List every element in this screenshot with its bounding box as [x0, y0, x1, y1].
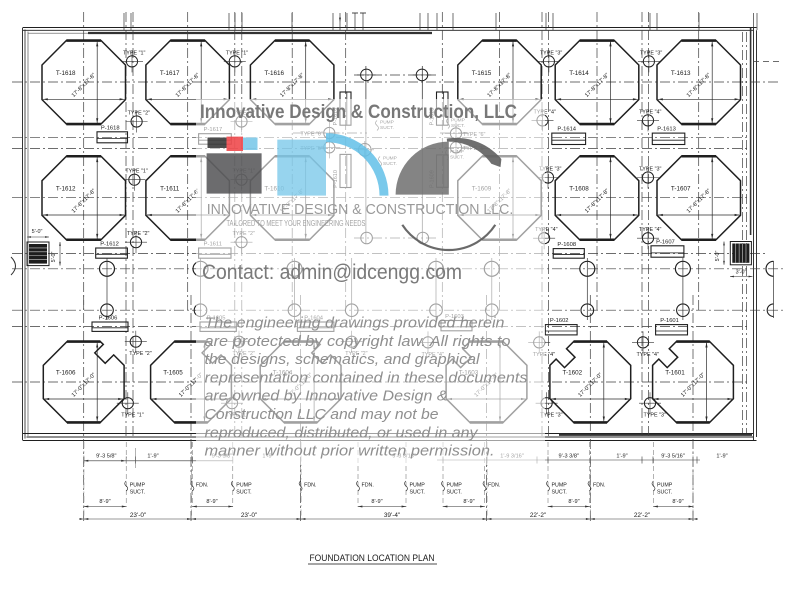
svg-text:TYPE "3": TYPE "3"	[640, 50, 662, 56]
svg-text:P-1601: P-1601	[660, 318, 679, 324]
svg-text:P-1612: P-1612	[100, 242, 119, 248]
svg-text:9'-3 5/16": 9'-3 5/16"	[661, 454, 685, 460]
svg-text:23'-0": 23'-0"	[241, 512, 257, 519]
svg-text:T-1611: T-1611	[160, 186, 180, 193]
svg-text:T-1616: T-1616	[264, 70, 284, 77]
svg-text:T-1602: T-1602	[562, 370, 582, 377]
svg-text:FOUNDATION LOCATION PLAN: FOUNDATION LOCATION PLAN	[310, 553, 435, 564]
svg-text:5'-0": 5'-0"	[32, 229, 43, 235]
svg-text:22'-2": 22'-2"	[634, 512, 650, 519]
svg-text:8'-9": 8'-9"	[206, 499, 217, 505]
svg-text:PUMP: PUMP	[657, 483, 673, 489]
svg-text:T-1618: T-1618	[56, 70, 76, 77]
svg-text:TYPE "4": TYPE "4"	[637, 352, 659, 358]
svg-text:P-1608: P-1608	[557, 242, 576, 248]
svg-text:Construction LLC and may not b: Construction LLC and may not be	[205, 406, 439, 423]
svg-text:8'-9": 8'-9"	[99, 499, 110, 505]
svg-text:are owned by Innovative Design: are owned by Innovative Design &	[205, 388, 448, 405]
svg-text:TYPE "2": TYPE "2"	[129, 351, 151, 357]
svg-text:T-1608: T-1608	[569, 186, 589, 193]
svg-text:SUCT.: SUCT.	[130, 490, 145, 496]
svg-text:The engineering drawings provi: The engineering drawings provided herein	[205, 315, 505, 332]
svg-text:TYPE "2": TYPE "2"	[127, 231, 149, 237]
svg-text:reproduced, distributed, or us: reproduced, distributed, or used in any	[205, 424, 480, 441]
svg-text:5'-0": 5'-0"	[715, 251, 721, 262]
svg-text:Innovative Design & Constructi: Innovative Design & Construction, LLC	[200, 101, 517, 123]
svg-text:TYPE "3": TYPE "3"	[639, 167, 661, 173]
svg-text:P-1602: P-1602	[550, 318, 569, 324]
svg-text:8'-9": 8'-9"	[568, 499, 579, 505]
svg-text:INNOVATIVE DESIGN & CONSTRUCTI: INNOVATIVE DESIGN & CONSTRUCTION LLC.	[207, 201, 514, 218]
svg-text:9'-3 3/8": 9'-3 3/8"	[558, 454, 578, 460]
svg-text:SUCT.: SUCT.	[657, 490, 672, 496]
svg-text:T-1601: T-1601	[665, 370, 685, 377]
svg-text:T-1607: T-1607	[671, 186, 691, 193]
svg-text:T-1614: T-1614	[569, 70, 589, 77]
svg-text:PUMP: PUMP	[552, 483, 568, 489]
svg-text:P-1614: P-1614	[557, 127, 576, 133]
svg-text:T-1612: T-1612	[56, 186, 76, 193]
svg-text:PUMP: PUMP	[410, 483, 426, 489]
svg-text:the designs, schematics, and g: the designs, schematics, and graphical	[205, 351, 481, 368]
svg-text:TYPE "3": TYPE "3"	[540, 50, 562, 56]
svg-text:5'-0": 5'-0"	[51, 252, 57, 263]
svg-text:SUCT.: SUCT.	[410, 490, 425, 496]
svg-text:FDN.: FDN.	[593, 483, 605, 489]
svg-text:T-1617: T-1617	[160, 70, 180, 77]
svg-text:TYPE "2": TYPE "2"	[128, 111, 150, 117]
svg-text:T-1605: T-1605	[163, 370, 183, 377]
svg-text:FDN.: FDN.	[362, 483, 374, 489]
svg-text:TYPE "1": TYPE "1"	[226, 50, 248, 56]
svg-text:SUCT.: SUCT.	[552, 490, 567, 496]
svg-text:PUMP: PUMP	[130, 483, 146, 489]
svg-text:22'-2": 22'-2"	[530, 512, 546, 519]
svg-text:39'-4": 39'-4"	[384, 512, 400, 519]
svg-text:T-1615: T-1615	[472, 70, 492, 77]
svg-text:P-1613: P-1613	[657, 127, 676, 133]
svg-text:SUCT.: SUCT.	[447, 490, 462, 496]
svg-text:Contact: admin@idcengg.com: Contact: admin@idcengg.com	[202, 261, 462, 284]
svg-text:1'-9": 1'-9"	[147, 454, 158, 460]
svg-text:manner without prior written p: manner without prior written permission.	[205, 443, 495, 460]
svg-text:8'-9": 8'-9"	[371, 499, 382, 505]
svg-text:TYPE "1": TYPE "1"	[125, 169, 147, 175]
svg-text:SUCT.: SUCT.	[236, 490, 251, 496]
svg-text:1'-9": 1'-9"	[716, 454, 727, 460]
svg-text:PUMP: PUMP	[236, 483, 252, 489]
svg-text:P-1618: P-1618	[101, 125, 120, 131]
svg-text:are protected by copyright law: are protected by copyright law. All righ…	[205, 333, 511, 350]
svg-text:T-1613: T-1613	[671, 70, 691, 77]
svg-text:9'-3 5/8": 9'-3 5/8"	[96, 454, 116, 460]
svg-text:FDN.: FDN.	[196, 483, 208, 489]
svg-text:PUMP: PUMP	[447, 483, 463, 489]
svg-text:TAILORED TO MEET YOUR ENGINEER: TAILORED TO MEET YOUR ENGINEERING NEEDS	[226, 219, 365, 228]
svg-text:FDN.: FDN.	[304, 483, 316, 489]
svg-text:TYPE "1": TYPE "1"	[121, 413, 143, 419]
svg-text:8'-9": 8'-9"	[463, 499, 474, 505]
svg-text:FDN.: FDN.	[488, 483, 500, 489]
svg-text:TYPE "4": TYPE "4"	[639, 109, 661, 115]
svg-text:P-1607: P-1607	[656, 239, 675, 245]
svg-text:representation contained in th: representation contained in these docume…	[205, 369, 529, 386]
svg-text:T-1606: T-1606	[56, 370, 76, 377]
svg-text:TYPE "3": TYPE "3"	[644, 413, 666, 419]
svg-text:1'-9": 1'-9"	[616, 454, 627, 460]
svg-text:TYPE "1": TYPE "1"	[123, 50, 145, 56]
svg-text:8'-9": 8'-9"	[672, 499, 683, 505]
svg-text:TYPE "4": TYPE "4"	[639, 227, 661, 233]
svg-text:3'-0": 3'-0"	[736, 270, 747, 276]
svg-text:23'-0": 23'-0"	[130, 512, 146, 519]
